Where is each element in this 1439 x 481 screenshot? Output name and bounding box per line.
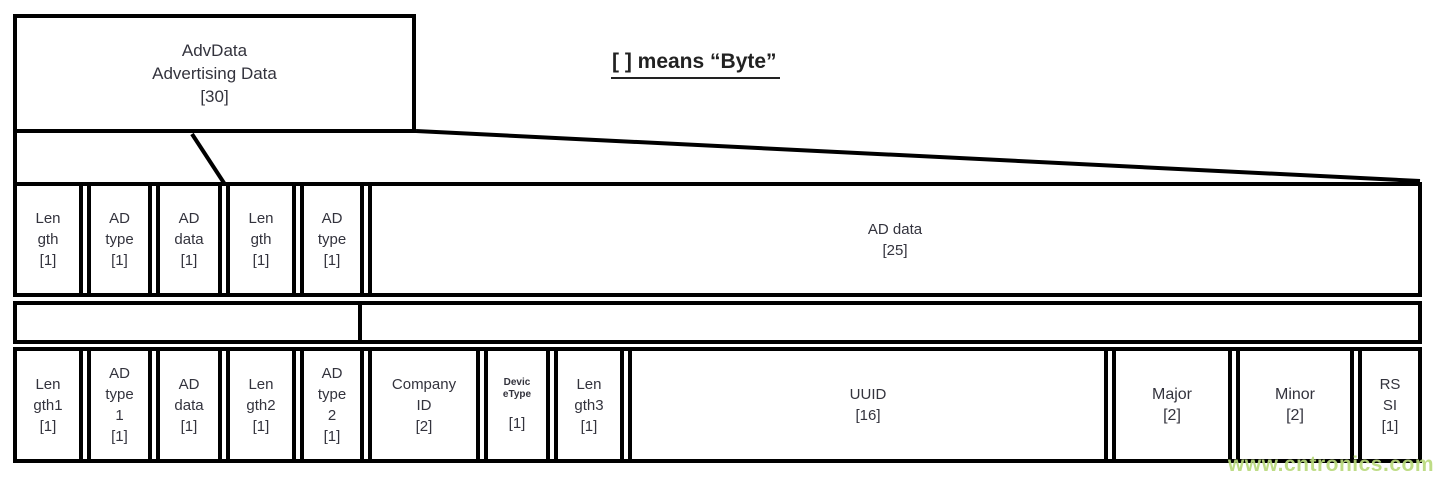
row1-cell-ad-type: AD type [1] bbox=[87, 182, 152, 297]
watermark: www.cntronics.com bbox=[1228, 453, 1434, 477]
row2-cell-uuid: UUID [16] bbox=[628, 347, 1108, 463]
row2-cell-length2: Len gth2 [1] bbox=[226, 347, 296, 463]
row2-cell-ad-type2: AD type 2 [1] bbox=[300, 347, 364, 463]
row-connector-strip-right bbox=[358, 301, 1422, 344]
row-connector-strip-left bbox=[13, 301, 362, 344]
row2-cell-company-id: Company ID [2] bbox=[368, 347, 480, 463]
row2-cell-length3: Len gth3 [1] bbox=[554, 347, 624, 463]
row1-cell-ad-data-25: AD data [25] bbox=[368, 182, 1422, 297]
row1-cell-ad-type-2: AD type [1] bbox=[300, 182, 364, 297]
row2-cell-minor: Minor [2] bbox=[1236, 347, 1354, 463]
device-type-bytes: [1] bbox=[509, 413, 526, 434]
row2-cell-rssi: RS SI [1] bbox=[1358, 347, 1422, 463]
row2-cell-ad-data: AD data [1] bbox=[156, 347, 222, 463]
inner-fanout-diagonal-line bbox=[192, 134, 224, 183]
row2-cell-device-type: Devic eType [1] bbox=[484, 347, 550, 463]
device-type-caption: Devic eType bbox=[503, 377, 531, 401]
row2-cell-length1: Len gth1 [1] bbox=[13, 347, 83, 463]
advdata-box: AdvData Advertising Data [30] bbox=[13, 14, 416, 133]
row1-cell-length-2: Len gth [1] bbox=[226, 182, 296, 297]
row1-cell-ad-data: AD data [1] bbox=[156, 182, 222, 297]
right-fanout-diagonal-line bbox=[416, 131, 1420, 181]
row1-cell-length: Len gth [1] bbox=[13, 182, 83, 297]
packet-structure-diagram: AdvData Advertising Data [30] [ ] means … bbox=[0, 0, 1439, 481]
byte-legend: [ ] means “Byte” bbox=[611, 50, 780, 79]
advdata-label: AdvData Advertising Data [30] bbox=[152, 39, 277, 108]
row2-cell-major: Major [2] bbox=[1112, 347, 1232, 463]
row2-cell-ad-type1: AD type 1 [1] bbox=[87, 347, 152, 463]
